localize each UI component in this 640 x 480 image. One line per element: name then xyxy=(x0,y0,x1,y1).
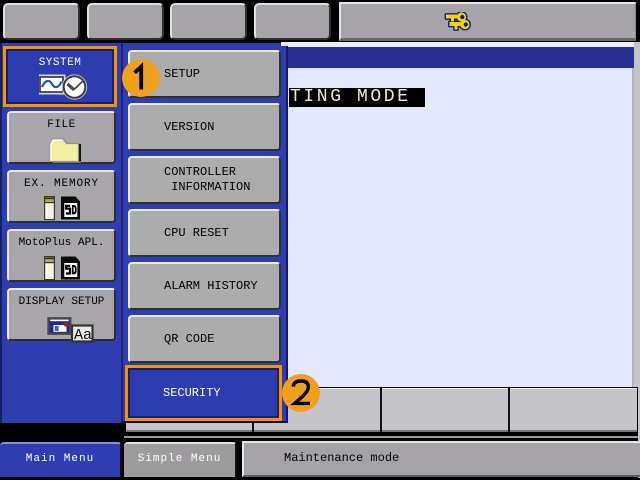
svg-text:Aa: Aa xyxy=(74,327,92,344)
